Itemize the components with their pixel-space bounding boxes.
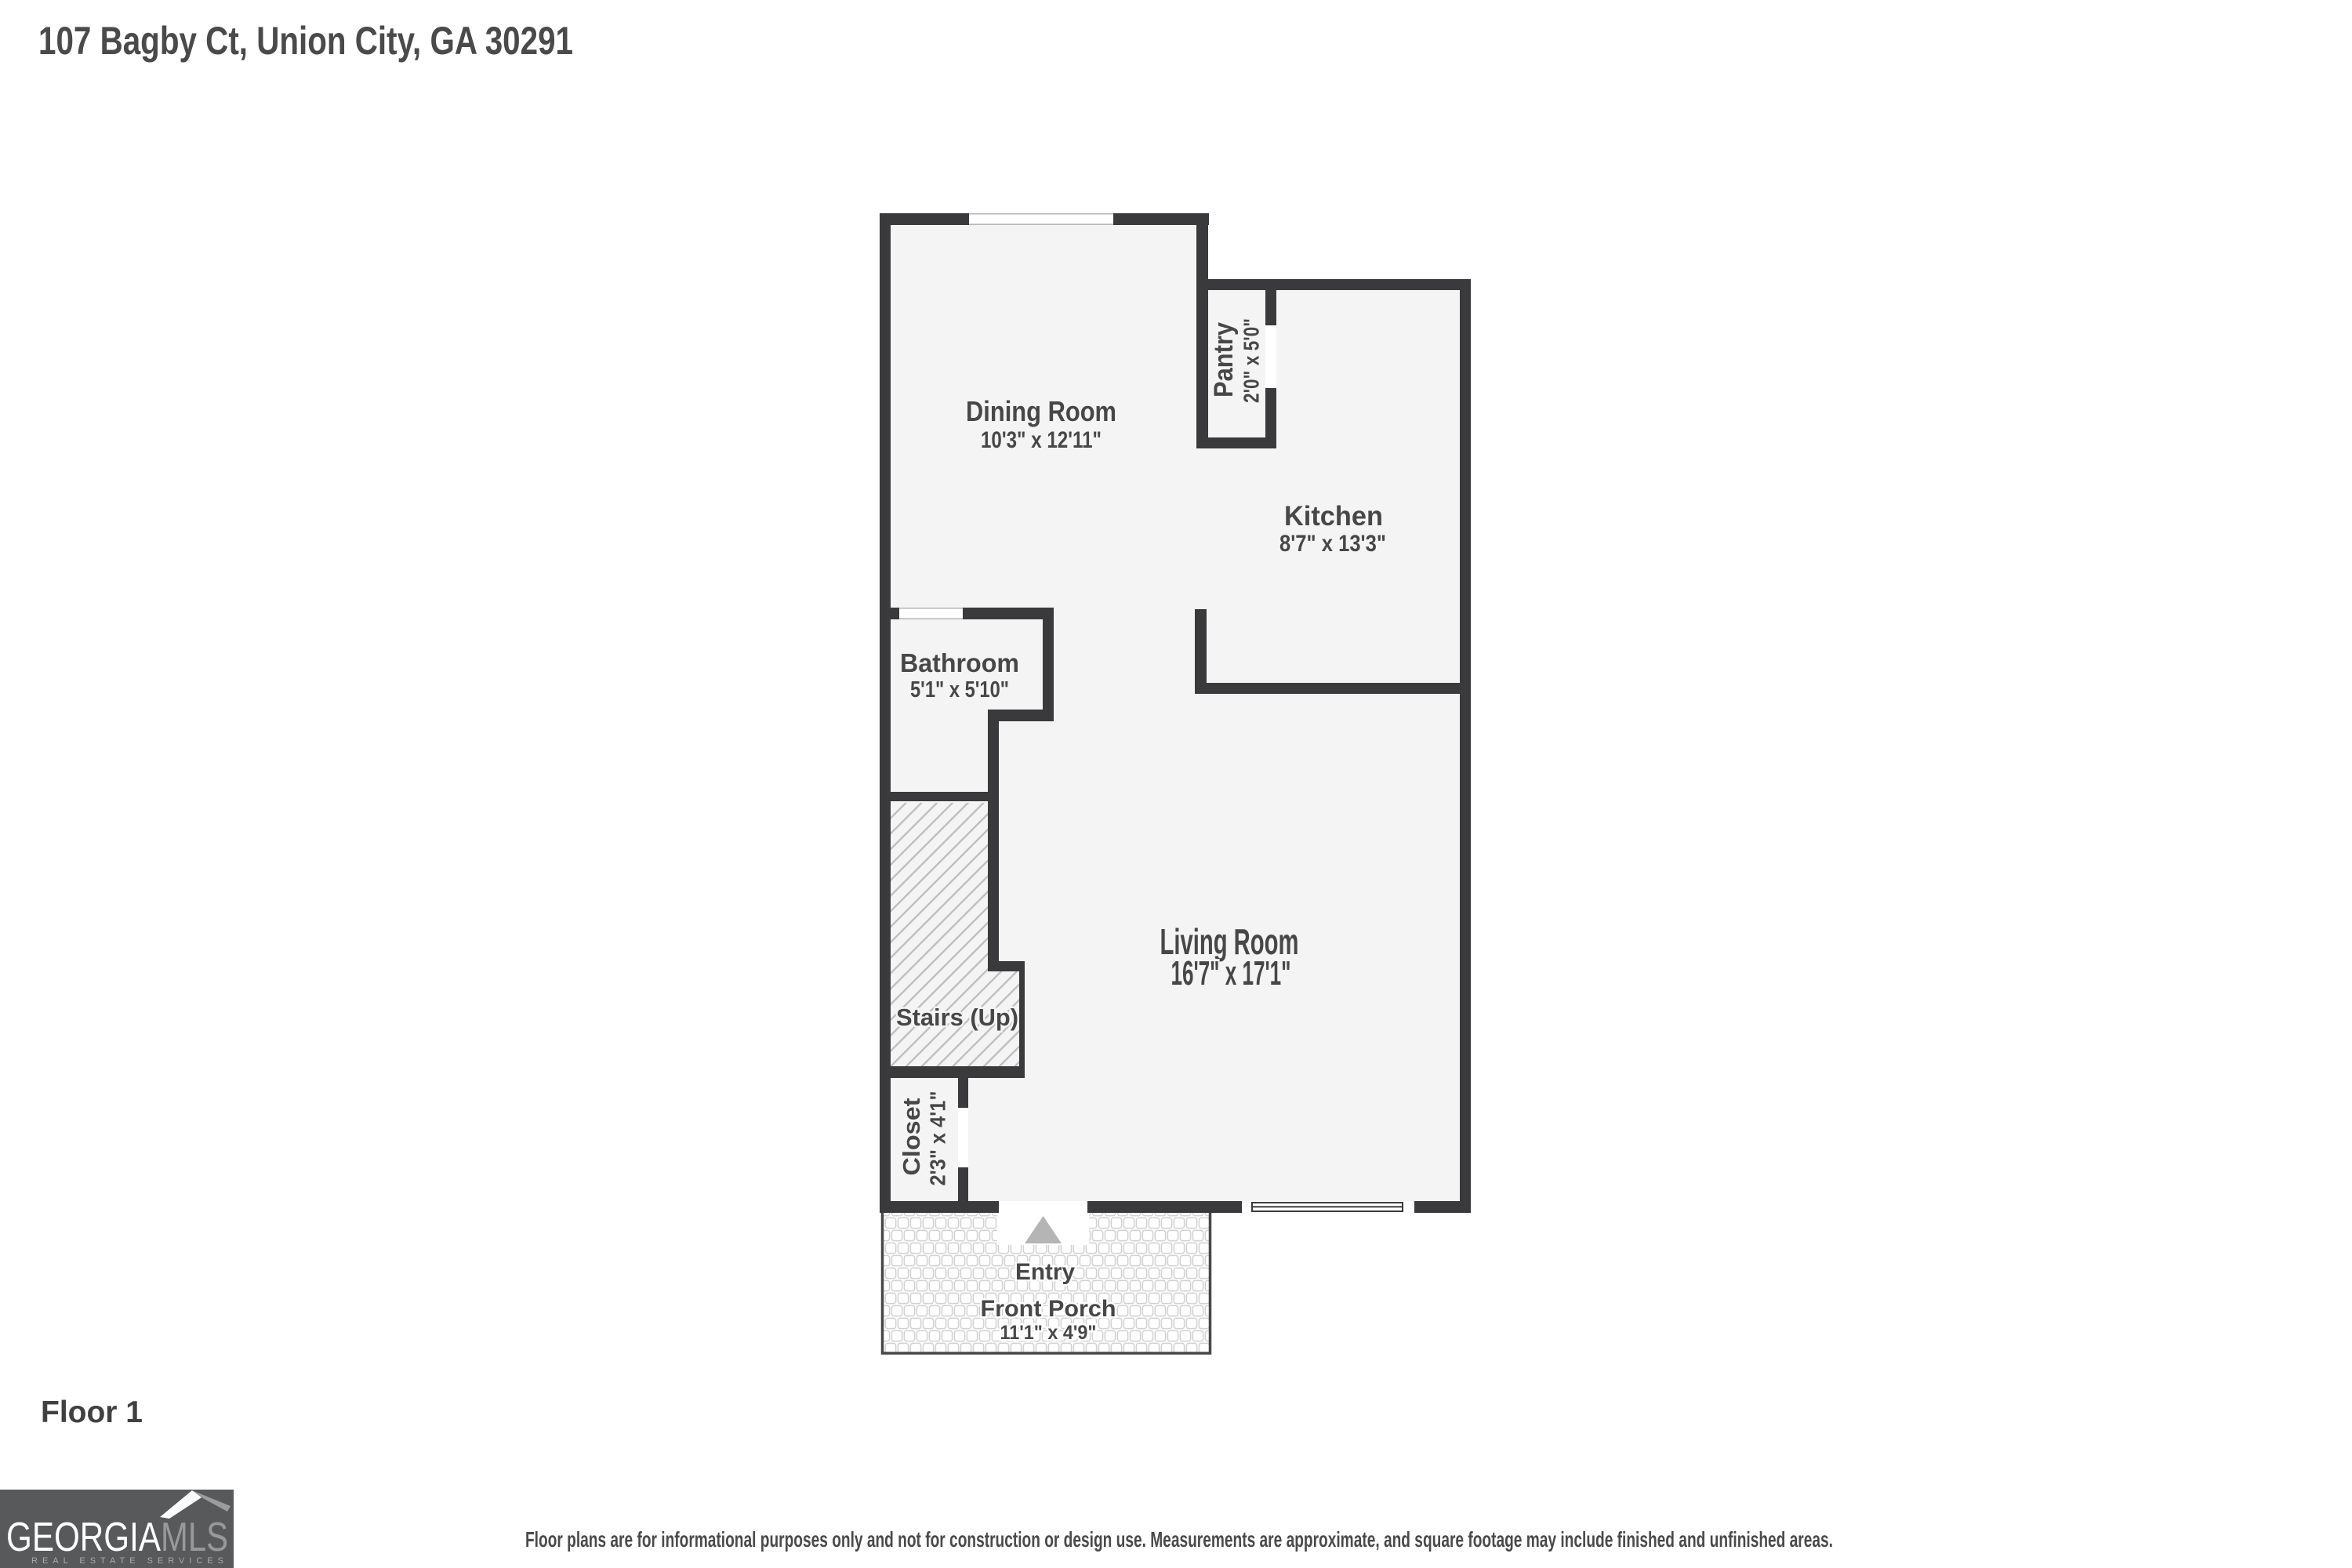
svg-text:5'1" x 5'10": 5'1" x 5'10" — [910, 677, 1009, 702]
svg-text:MLS: MLS — [161, 1515, 228, 1560]
svg-text:8'7" x 13'3": 8'7" x 13'3" — [1279, 531, 1386, 557]
svg-text:Entry: Entry — [1015, 1259, 1075, 1285]
svg-text:16'7" x 17'1": 16'7" x 17'1" — [1171, 954, 1291, 993]
svg-text:Kitchen: Kitchen — [1284, 501, 1383, 532]
svg-text:Floor 1: Floor 1 — [41, 1396, 143, 1429]
svg-text:GEORGIA: GEORGIA — [6, 1515, 161, 1560]
svg-text:Stairs (Up): Stairs (Up) — [896, 1004, 1018, 1031]
svg-text:2'3" x 4'1": 2'3" x 4'1" — [925, 1091, 949, 1186]
svg-text:Front Porch: Front Porch — [981, 1296, 1116, 1322]
svg-text:Dining Room: Dining Room — [966, 395, 1116, 427]
svg-text:10'3" x 12'11": 10'3" x 12'11" — [981, 427, 1102, 453]
svg-text:Bathroom: Bathroom — [900, 648, 1019, 677]
svg-text:Pantry: Pantry — [1209, 322, 1239, 397]
svg-text:Closet: Closet — [898, 1098, 925, 1176]
svg-text:107 Bagby Ct, Union City, GA 3: 107 Bagby Ct, Union City, GA 30291 — [38, 19, 573, 63]
svg-text:2'0" x 5'0": 2'0" x 5'0" — [1239, 318, 1263, 403]
svg-text:11'1" x 4'9": 11'1" x 4'9" — [1000, 1322, 1097, 1344]
svg-text:Floor plans are for informatio: Floor plans are for informational purpos… — [525, 1527, 1833, 1552]
